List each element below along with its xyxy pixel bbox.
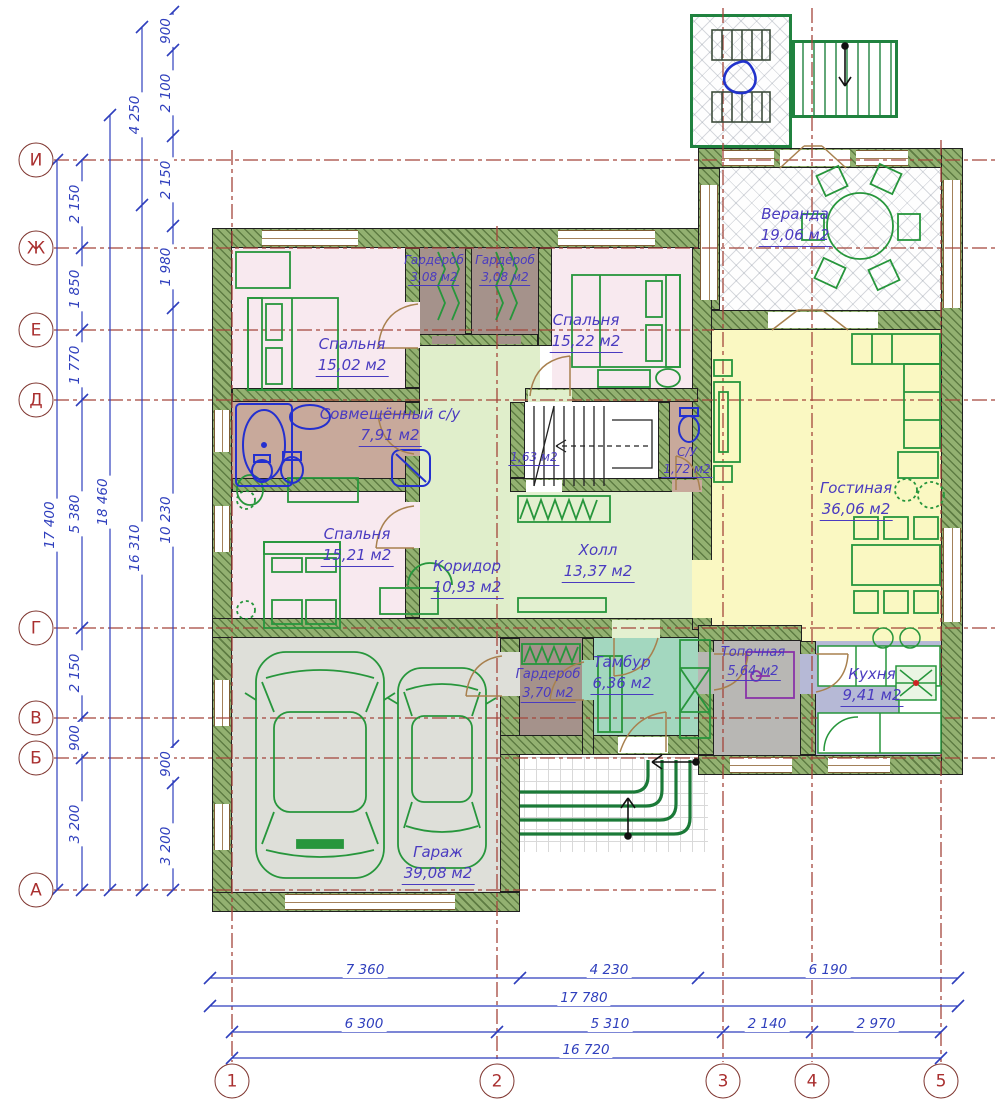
dim: 900 (67, 722, 83, 754)
dim: 2 140 (745, 1016, 790, 1032)
dim: 5 310 (588, 1016, 633, 1032)
window (214, 680, 230, 726)
label-living: Гостиная36,06 м2 (820, 478, 893, 521)
dim: 5 380 (67, 492, 83, 537)
axis-row-i: И (19, 143, 54, 178)
dim: 3 200 (158, 824, 174, 869)
dim: 6 190 (806, 962, 851, 978)
dim: 2 150 (67, 651, 83, 696)
label-bedroom-1: Спальня15,02 м2 (316, 334, 389, 377)
label-kitchen: Кухня9,41 м2 (840, 664, 903, 707)
door-opening (526, 480, 562, 492)
axis-row-a: А (19, 873, 54, 908)
window (722, 150, 774, 166)
label-bathroom: Совмещённый с/у7,91 м2 (320, 404, 461, 447)
door-opening (698, 652, 714, 694)
axis-row-b: Б (19, 741, 54, 776)
room-living-ext (802, 625, 941, 641)
dim: 900 (158, 748, 174, 780)
window (828, 757, 890, 773)
dim: 10 230 (158, 493, 174, 546)
dim: 2 100 (158, 71, 174, 116)
label-veranda: Веранда19,06 м2 (759, 204, 832, 247)
axis-col-4: 4 (795, 1064, 830, 1099)
dim: 16 720 (559, 1042, 612, 1058)
label-garage: Гараж39,08 м2 (402, 842, 475, 885)
window (214, 506, 230, 552)
label-corridor: Коридор10,93 м2 (431, 556, 504, 599)
room-corridor-top (418, 346, 540, 402)
label-stairs-area: 1,63 м2 (508, 448, 559, 466)
door-opening (612, 620, 660, 638)
dim: 4 230 (587, 962, 632, 978)
door-opening (692, 560, 712, 618)
wall (500, 735, 712, 755)
door-opening (497, 336, 521, 344)
window (262, 230, 358, 246)
floor-plan: Веранда19,06 м2 Спальня15,02 м2 Гардероб… (0, 0, 1000, 1109)
dim: 4 250 (127, 93, 143, 138)
axis-row-g: Г (19, 611, 54, 646)
garage-door (285, 894, 455, 910)
dim: 16 310 (127, 521, 143, 574)
window (214, 410, 230, 452)
label-boiler: Топочная5,64 м2 (721, 644, 785, 681)
window (700, 185, 718, 300)
dim: 1 770 (67, 343, 83, 388)
door-opening (405, 302, 420, 348)
axis-row-v: В (19, 701, 54, 736)
axis-row-d: Д (19, 383, 54, 418)
room-terrace (690, 14, 792, 148)
label-wardrobe-2: Гардероб3,08 м2 (475, 252, 535, 286)
axis-col-3: 3 (706, 1064, 741, 1099)
dim: 2 150 (158, 158, 174, 203)
window (856, 150, 908, 166)
window (943, 180, 961, 308)
label-wc: С/У1,72 м2 (661, 444, 712, 478)
door-opening (405, 502, 420, 548)
french-door-opening (768, 312, 878, 328)
wall (232, 388, 420, 402)
dim: 1 850 (67, 267, 83, 312)
room-porch (512, 757, 708, 852)
door-opening (432, 336, 456, 344)
wall (465, 248, 472, 334)
wall (510, 402, 525, 478)
door-opening (528, 390, 572, 402)
axis-col-2: 2 (480, 1064, 515, 1099)
door-opening (618, 737, 668, 753)
dim: 7 360 (343, 962, 388, 978)
label-wardrobe-1: Гардероб3,08 м2 (404, 252, 464, 286)
dim: 6 300 (342, 1016, 387, 1032)
label-hall: Холл13,37 м2 (562, 540, 635, 583)
window (558, 230, 655, 246)
axis-col-1: 1 (215, 1064, 250, 1099)
window (214, 804, 230, 850)
veranda-door-opening (780, 150, 850, 166)
label-bedroom-2: Спальня15,22 м2 (550, 310, 623, 353)
room-terrace-stairs (792, 40, 898, 118)
wall (698, 625, 802, 641)
label-tambur: Тамбур6,36 м2 (590, 652, 653, 695)
dim: 17 780 (557, 990, 610, 1006)
door-opening (800, 654, 816, 694)
dim: 900 (158, 15, 174, 47)
dim: 18 460 (95, 475, 111, 528)
wall (232, 478, 420, 492)
door-opening (672, 480, 702, 492)
dim: 3 200 (67, 802, 83, 847)
window (943, 528, 961, 622)
label-bedroom-3: Спальня15,21 м2 (321, 524, 394, 567)
dim: 2 150 (67, 182, 83, 227)
room-stairs (525, 402, 658, 478)
axis-col-5: 5 (924, 1064, 959, 1099)
axis-row-zh: Ж (19, 231, 54, 266)
window (730, 757, 792, 773)
label-wardrobe-3: Гардероб3,70 м2 (516, 666, 581, 703)
dim: 1 980 (158, 245, 174, 290)
dim: 2 970 (854, 1016, 899, 1032)
axis-row-e: Е (19, 313, 54, 348)
dim: 17 400 (42, 498, 58, 551)
